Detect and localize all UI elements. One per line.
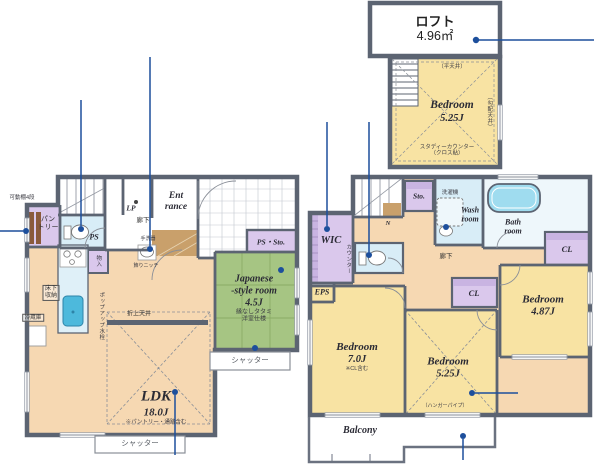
ldk-label: LDK 18.0J ※パントリー・通路含む: [126, 388, 187, 425]
bedroom-487-label: Bedroom 4.87J: [522, 293, 564, 318]
hallway-1f-label: 廊下: [137, 217, 150, 225]
ldk-size: 18.0J: [144, 406, 169, 419]
balcony-railing: [309, 417, 495, 462]
closet-mid-label: CL: [469, 288, 480, 298]
ldk-note: ※パントリー・通路含む: [126, 419, 187, 425]
loft-note-sloped-ceiling: （勾配天井）: [486, 94, 492, 130]
genkan-step: [152, 230, 198, 256]
washer-label: 洗濯機: [442, 190, 459, 196]
loft-name: ロフト: [415, 14, 454, 29]
shutter-label-tatami: シャッター: [231, 357, 269, 366]
counter-label: カウンター: [345, 244, 351, 274]
loft-note-flat-ceiling: （平天井）: [438, 64, 466, 70]
eps-label: EPS: [315, 287, 330, 296]
hand-basin-label: 手洗器: [140, 237, 155, 243]
washing-machine-icon: [437, 198, 463, 226]
storage-small-label: 物入: [95, 255, 101, 267]
popup-faucet-label: ポップアップ水栓: [98, 292, 104, 340]
loft-note-bottom: スタディーカウンター （クロス貼）: [420, 145, 475, 158]
loft-bedroom-size: 5.25J: [440, 113, 464, 125]
loft-bedroom-label: Bedroom 5.25J: [430, 99, 473, 125]
loft-title: ロフト 4.96㎡: [415, 14, 454, 44]
ldk-name: LDK: [141, 388, 171, 406]
bath-room-label: Bath room: [504, 218, 521, 237]
pantry-label: パン トリー: [38, 216, 59, 233]
hanger-pipe-note: （ハンガーパイプ）: [423, 404, 468, 410]
storage-2f-label: Sto.: [413, 193, 425, 202]
hallway-2f-label: 廊下: [440, 253, 453, 261]
loft-area: 4.96㎡: [417, 29, 454, 44]
bedroom-7-label: Bedroom 7.0J ※CL含む: [336, 341, 378, 373]
loft-bedroom-name: Bedroom: [430, 99, 473, 113]
bedroom-525-label: Bedroom 5.25J: [427, 355, 469, 380]
fridge-icon: [28, 326, 46, 346]
wash-room-label: Wash room: [461, 206, 479, 225]
ps-sto-label: PS・Sto.: [257, 239, 285, 248]
underfloor-storage-label: 床下 収納: [42, 285, 59, 301]
fridge-label: 冷蔵庫: [22, 314, 44, 322]
wic-label: WIC: [321, 235, 341, 247]
lp-label: LP: [126, 205, 135, 214]
japanese-room-label: Japanese -style room 4.5J 縁なしタタミ 洋室仕様: [231, 274, 277, 325]
ps-label: PS: [89, 232, 98, 241]
balcony-label: Balcony: [343, 425, 377, 437]
shutter-label-ldk: シャッター: [121, 440, 159, 449]
niche-label: 飾りニッチ: [133, 264, 158, 270]
pantry-shelf-note: 可動棚4段: [9, 195, 34, 201]
north-mark: N: [386, 220, 391, 228]
entrance-label: Ent rance: [165, 191, 187, 213]
closet-right-label: CL: [562, 244, 573, 254]
coffered-ceiling-label: 折上天井: [127, 311, 151, 318]
floor-plan-page: ロフト 4.96㎡ Bedroom 5.25J （平天井） （勾配天井） スタデ…: [0, 0, 600, 474]
